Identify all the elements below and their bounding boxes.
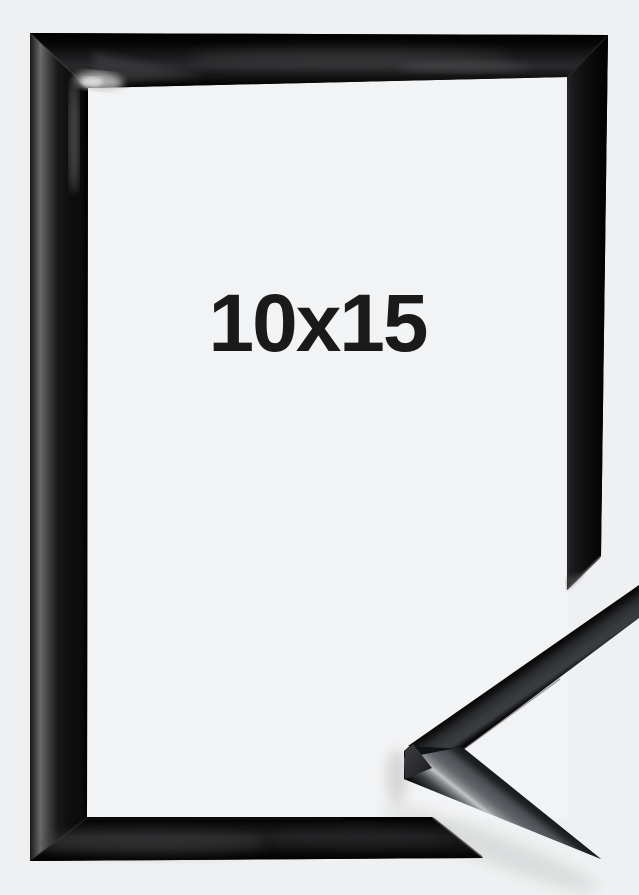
frame-illustration xyxy=(0,0,639,895)
frame-left-bar xyxy=(30,33,88,861)
size-label: 10x15 xyxy=(0,283,635,365)
bottom-bar-sheen xyxy=(35,832,265,854)
left-lip-highlight xyxy=(69,77,79,193)
bottom-lip-line xyxy=(88,818,343,820)
top-bar-brushed-sheen-2 xyxy=(400,61,530,73)
frame-product-photo: 10x15 xyxy=(0,0,639,895)
inner-lip-highlight-core xyxy=(81,77,103,87)
